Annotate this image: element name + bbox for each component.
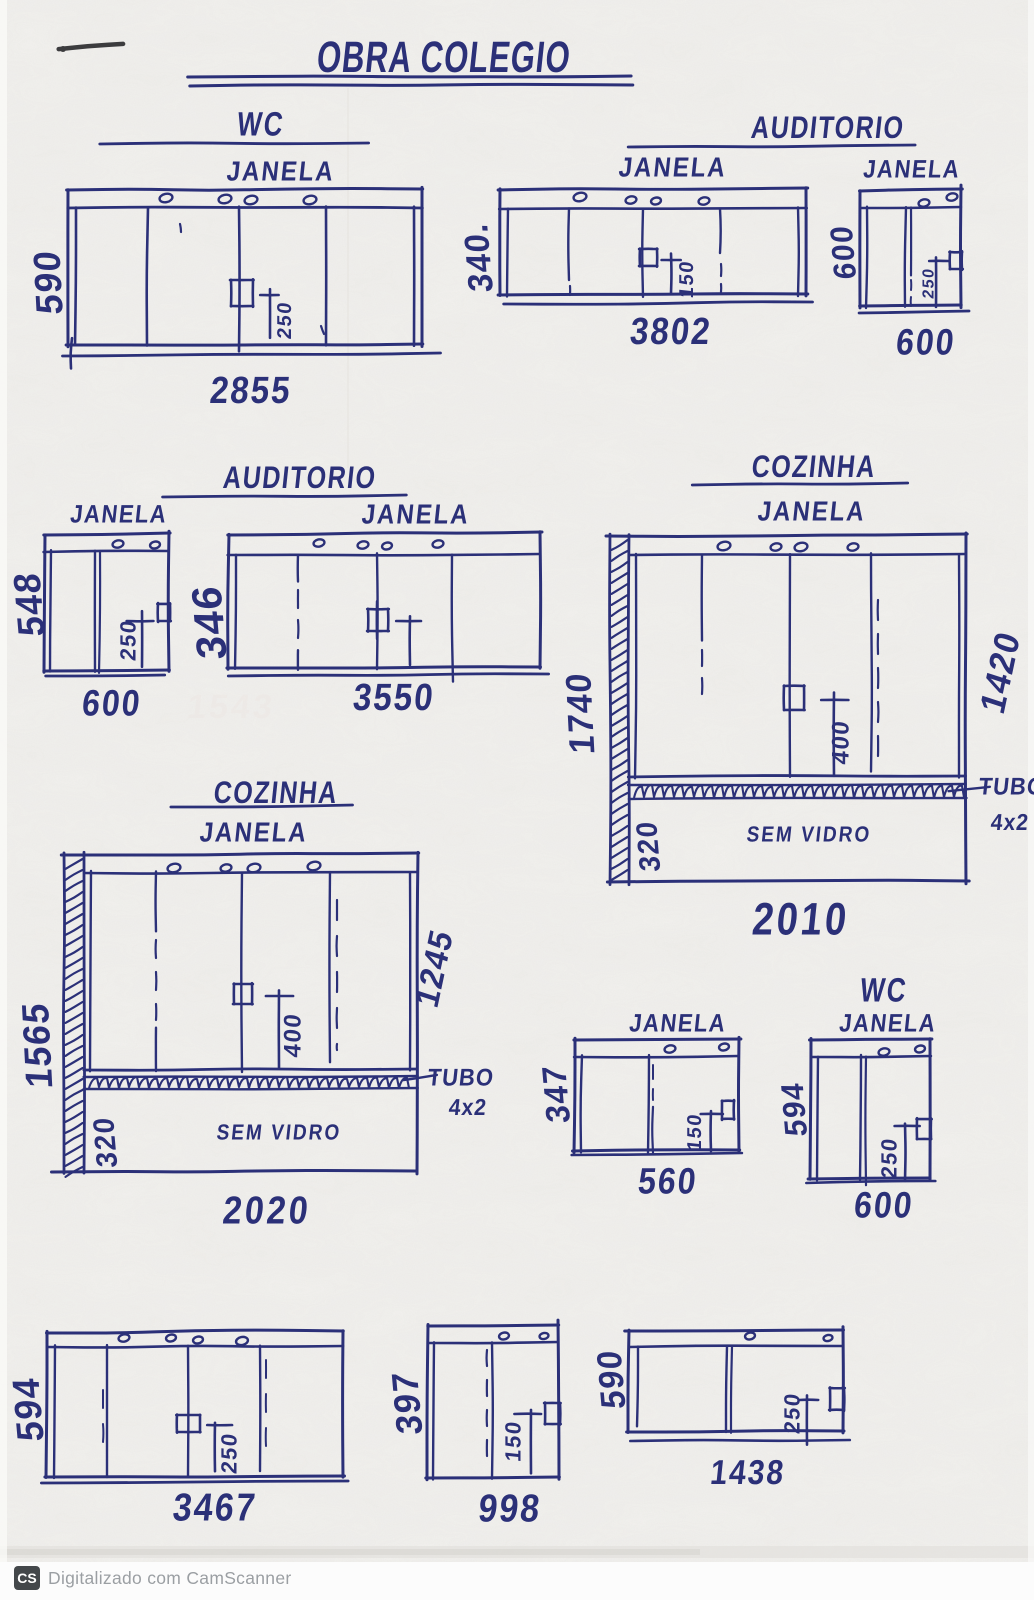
- svg-text:JANELA: JANELA: [69, 500, 169, 529]
- svg-text:560: 560: [636, 1162, 700, 1202]
- svg-text:397: 397: [383, 1371, 431, 1434]
- svg-text:1543: 1543: [185, 688, 277, 726]
- svg-text:AUDITORIO: AUDITORIO: [749, 110, 906, 145]
- svg-text:590: 590: [25, 249, 71, 316]
- svg-text:JANELA: JANELA: [360, 500, 471, 530]
- svg-text:TUBO: TUBO: [977, 772, 1034, 799]
- svg-text:3550: 3550: [351, 676, 437, 719]
- svg-text:JANELA: JANELA: [628, 1009, 728, 1038]
- svg-text:3802: 3802: [628, 310, 714, 353]
- svg-text:250: 250: [274, 300, 296, 340]
- svg-text:Digitalizado com CamScanner: Digitalizado com CamScanner: [48, 1568, 291, 1588]
- svg-text:600: 600: [823, 225, 864, 280]
- svg-text:548: 548: [4, 571, 53, 636]
- svg-text:SEM VIDRO: SEM VIDRO: [215, 1120, 342, 1144]
- svg-text:JANELA: JANELA: [225, 157, 336, 187]
- svg-text:1565: 1565: [13, 1001, 61, 1089]
- svg-text:CS: CS: [17, 1570, 36, 1586]
- svg-text:594: 594: [774, 1082, 815, 1137]
- svg-text:150: 150: [501, 1419, 526, 1463]
- svg-text:320: 320: [630, 820, 667, 872]
- svg-text:AUDITORIO: AUDITORIO: [221, 460, 378, 495]
- svg-text:250: 250: [920, 267, 938, 300]
- svg-text:COZINHA: COZINHA: [750, 449, 878, 484]
- svg-text:4x2: 4x2: [448, 1094, 489, 1120]
- svg-text:250: 250: [877, 1136, 902, 1180]
- svg-text:JANELA: JANELA: [756, 497, 867, 527]
- svg-text:4x2: 4x2: [990, 809, 1031, 835]
- svg-text:JANELA: JANELA: [862, 155, 962, 184]
- svg-text:346: 346: [182, 584, 236, 659]
- svg-text:998: 998: [476, 1486, 543, 1530]
- svg-text:347: 347: [534, 1065, 577, 1123]
- svg-text:3467: 3467: [171, 1485, 259, 1529]
- svg-text:600: 600: [80, 684, 144, 724]
- svg-text:600: 600: [852, 1186, 916, 1226]
- svg-text:WC: WC: [858, 973, 909, 1010]
- svg-text:150: 150: [684, 1112, 706, 1152]
- svg-text:JANELA: JANELA: [198, 818, 309, 848]
- svg-text:2010: 2010: [750, 894, 852, 945]
- svg-text:320: 320: [87, 1116, 124, 1168]
- svg-text:150: 150: [676, 259, 698, 299]
- svg-text:400: 400: [827, 718, 854, 765]
- svg-text:340.: 340.: [456, 222, 501, 293]
- svg-text:JANELA: JANELA: [617, 153, 728, 183]
- svg-text:250: 250: [217, 1431, 242, 1475]
- svg-text:594: 594: [3, 1376, 52, 1441]
- svg-text:400: 400: [279, 1011, 306, 1058]
- svg-text:1438: 1438: [709, 1453, 788, 1491]
- svg-text:SEM VIDRO: SEM VIDRO: [745, 822, 872, 846]
- svg-text:250: 250: [780, 1391, 805, 1435]
- svg-text:2855: 2855: [208, 369, 294, 412]
- svg-text:590: 590: [590, 1349, 634, 1409]
- svg-text:TUBO: TUBO: [426, 1063, 495, 1090]
- svg-text:600: 600: [894, 323, 958, 363]
- svg-text:2020: 2020: [221, 1188, 313, 1232]
- svg-text:JANELA: JANELA: [838, 1009, 938, 1038]
- svg-text:WC: WC: [235, 107, 286, 144]
- svg-text:250: 250: [116, 618, 141, 662]
- svg-text:1740: 1740: [558, 671, 602, 755]
